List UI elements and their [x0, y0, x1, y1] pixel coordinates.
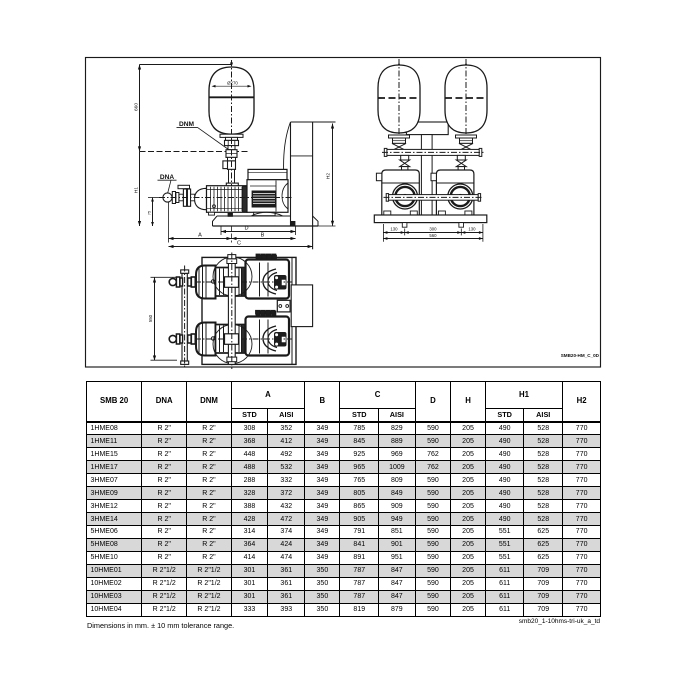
- svg-text:H2: H2: [326, 173, 332, 179]
- svg-text:75: 75: [148, 211, 152, 215]
- svg-text:H1: H1: [134, 187, 140, 193]
- svg-text:Ø270: Ø270: [227, 81, 238, 86]
- svg-text:560: 560: [429, 233, 437, 238]
- svg-text:660: 660: [134, 103, 140, 111]
- svg-text:300: 300: [429, 227, 437, 232]
- svg-text:130: 130: [390, 227, 398, 232]
- svg-text:B: B: [261, 233, 265, 239]
- svg-text:A: A: [198, 233, 202, 239]
- svg-text:130: 130: [468, 227, 476, 232]
- svg-text:550: 550: [148, 314, 153, 322]
- svg-text:DNM: DNM: [179, 121, 195, 128]
- svg-text:D: D: [244, 226, 248, 232]
- svg-text:SMB20-HM_C_0D: SMB20-HM_C_0D: [561, 353, 600, 358]
- svg-text:C: C: [237, 240, 241, 246]
